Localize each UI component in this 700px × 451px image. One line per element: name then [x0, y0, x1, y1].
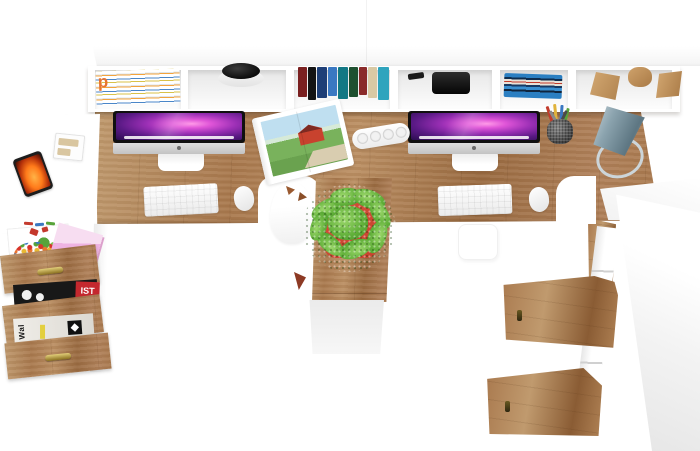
- book: [378, 67, 389, 100]
- drawer-handle: [45, 353, 71, 362]
- book: [338, 67, 348, 99]
- socket-icon: [382, 128, 395, 141]
- chair-leg: [294, 272, 306, 290]
- pencil: [24, 222, 33, 226]
- wooden-block: [628, 67, 652, 87]
- keyboard-1: [143, 183, 218, 217]
- book: [308, 67, 316, 100]
- apple-logo-icon: [472, 146, 476, 150]
- left-return-desk: [0, 114, 100, 234]
- magazine-photo: [260, 105, 348, 177]
- wooden-block: [656, 71, 682, 98]
- organizer-slot: [57, 148, 71, 156]
- apple-logo-icon: [177, 146, 181, 150]
- socket-icon: [356, 132, 369, 145]
- book: [317, 67, 327, 98]
- magazine-stack: p: [95, 69, 180, 106]
- center-pedestal-panel: [308, 300, 384, 354]
- newspaper-masthead: Wal: [17, 324, 27, 340]
- desk-organizer: [53, 133, 86, 162]
- book: [328, 67, 337, 96]
- organizer-slot: [58, 138, 79, 147]
- desk-cutout-right: [556, 176, 596, 224]
- book: [298, 67, 307, 97]
- hutch-top-panel: [82, 0, 700, 66]
- socket-icon: [395, 126, 408, 139]
- photo-path: [305, 141, 348, 168]
- scene-render: p: [0, 0, 700, 451]
- keyboard-2: [437, 184, 512, 217]
- cabinet-door-bottom: [486, 368, 602, 436]
- magazine-graphic: [21, 290, 32, 301]
- door-handle: [517, 310, 522, 321]
- socket-icon: [369, 130, 382, 143]
- black-bowl: [222, 63, 260, 79]
- book-row: [298, 67, 390, 100]
- book: [368, 67, 377, 98]
- desk-leg: [458, 224, 498, 260]
- speaker: [432, 72, 470, 94]
- cabinet-door-top: [500, 276, 618, 350]
- book: [359, 67, 367, 95]
- magazine-spine-letter: p: [98, 73, 109, 90]
- imac-1-dock: [124, 136, 234, 139]
- imac-2-dock: [419, 136, 529, 139]
- highlighter-mark: [40, 325, 45, 339]
- newspaper-logo-icon: [67, 320, 82, 335]
- blue-book-stack: [504, 73, 563, 99]
- book: [349, 67, 358, 97]
- plant-foliage: [302, 184, 396, 272]
- door-handle: [505, 401, 510, 412]
- pencil-cup: [547, 119, 573, 144]
- drawer-handle: [37, 266, 64, 275]
- foliage-texture: [302, 184, 396, 272]
